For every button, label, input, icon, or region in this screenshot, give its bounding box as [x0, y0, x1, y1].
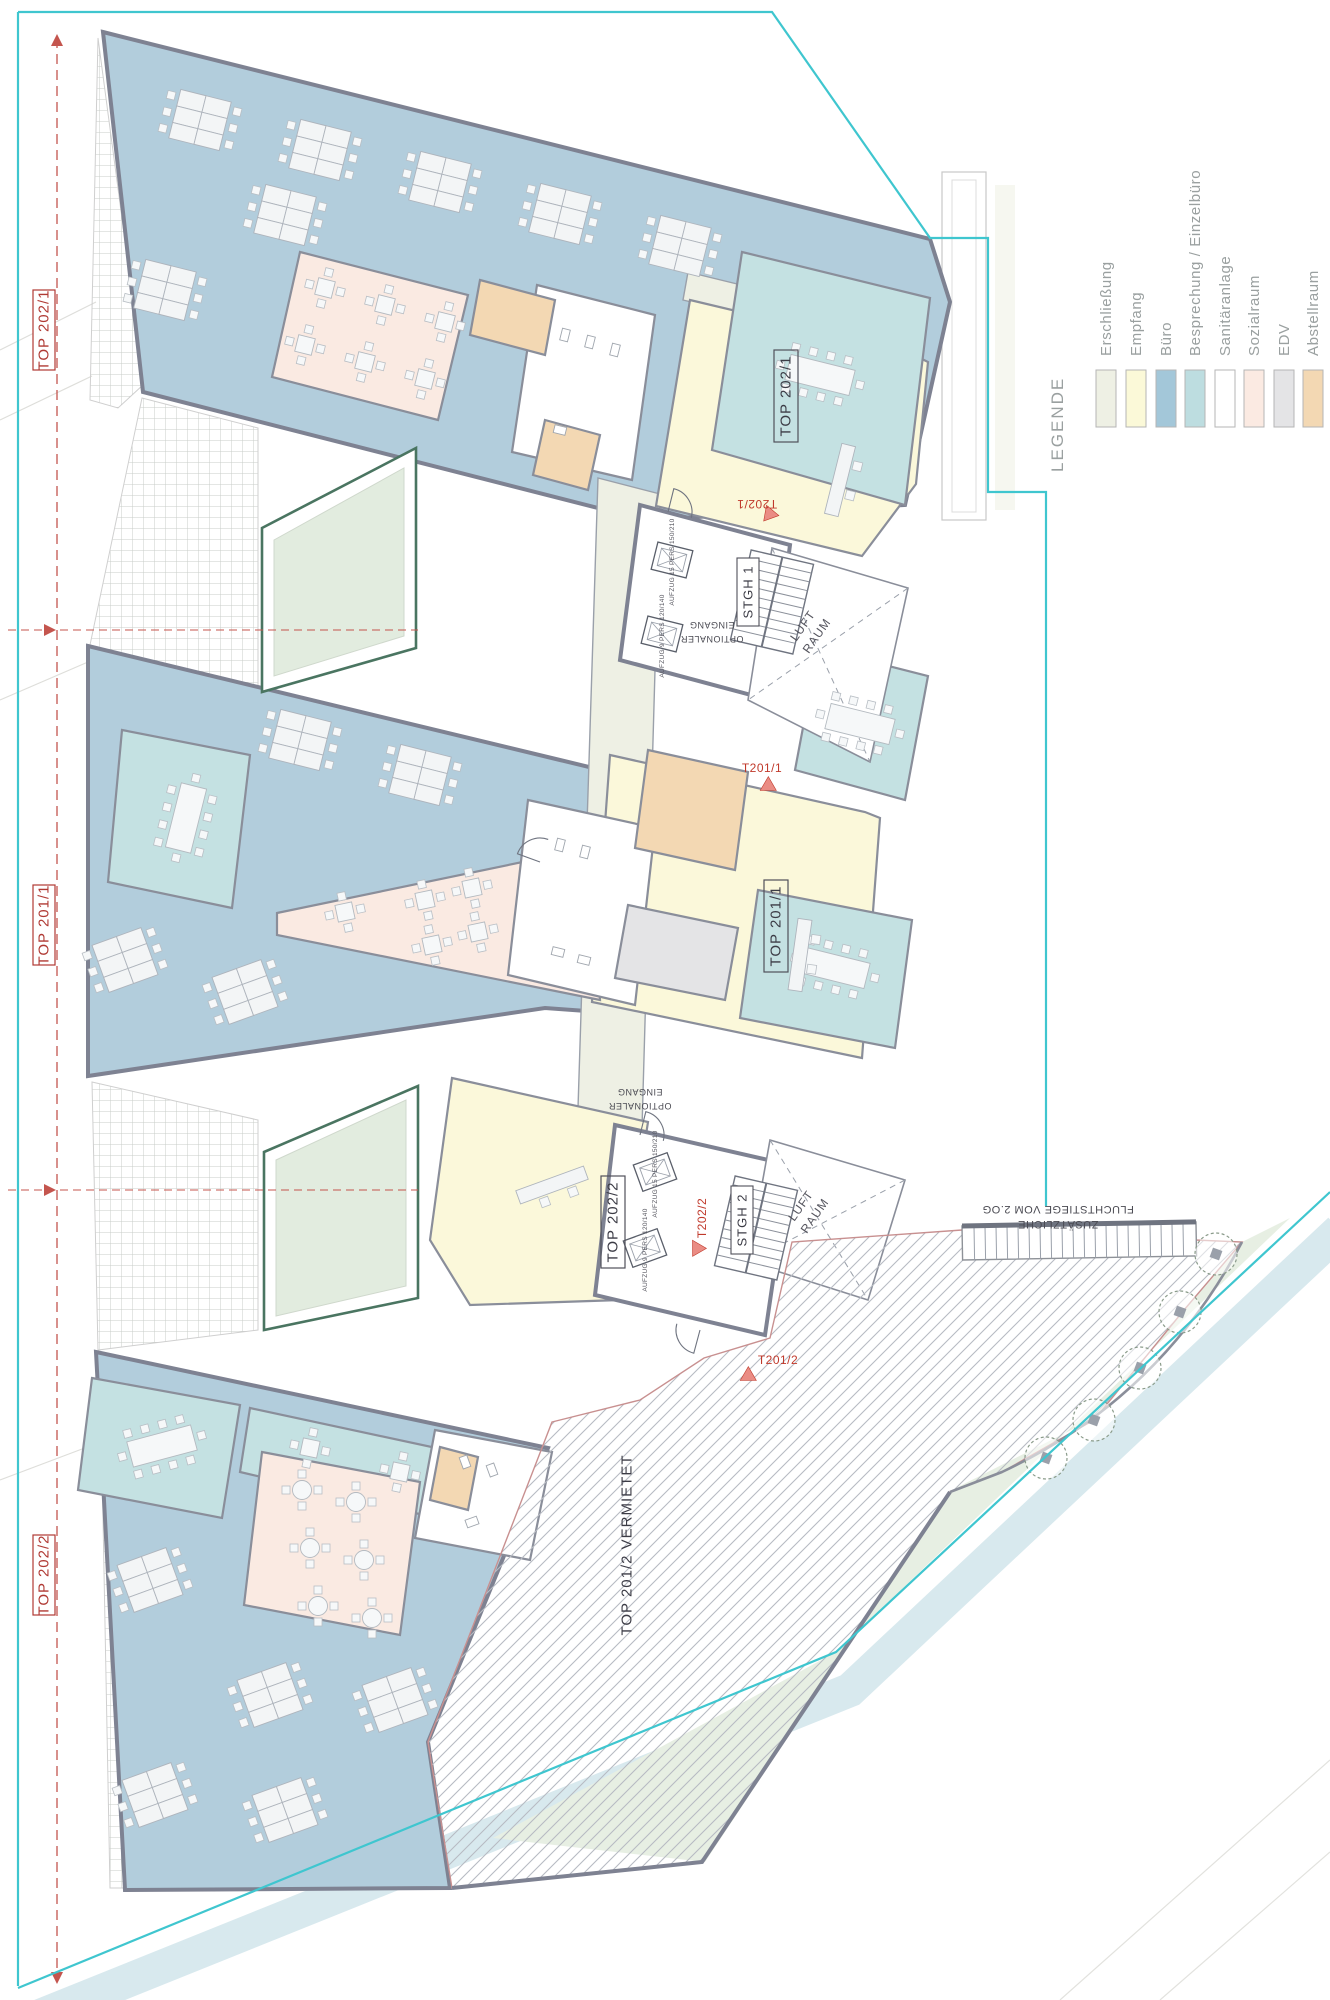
stair-label-2: STGH 2 — [731, 1186, 753, 1254]
unit-label-top-text: TOP 202/1 — [778, 356, 795, 437]
unit-label-top: TOP 202/1 — [774, 350, 798, 442]
legend-label-sozialraum: Sozialraum — [1246, 275, 1263, 356]
door-tag-bottom: T201/2 — [758, 1353, 798, 1367]
optional-entrance-1-line2: EINGANG — [689, 620, 734, 630]
elevator-2-label: AUFZUG 9 PERS 120/140 — [659, 594, 666, 677]
elevator-4-label: AUFZUG 9 PERS 120/140 — [642, 1208, 649, 1291]
unit-label-rented: TOP 201/2 VERMIETET — [619, 1454, 636, 1635]
legend-label-besprechung: Besprechung / Einzelbüro — [1187, 170, 1204, 356]
legend-title: LEGENDE — [1048, 377, 1067, 472]
optional-entrance-2-line1: OPTIONALER — [608, 1101, 671, 1111]
unit-label-left-lower: TOP 202/2 — [33, 1535, 55, 1616]
door-tag-top: T202/1 — [737, 497, 777, 511]
unit-label-left-top: TOP 202/1 — [33, 290, 55, 371]
legend-swatch-buero — [1156, 370, 1176, 427]
unit-label-lower-text: TOP 202/2 — [605, 1182, 622, 1263]
legend-swatch-empfang — [1126, 370, 1146, 427]
legend-swatch-abstellraum — [1303, 370, 1323, 427]
unit-label-middle: TOP 201/1 — [764, 880, 788, 972]
legend-swatch-erschliessung — [1096, 370, 1116, 427]
legend-swatch-besprechung — [1185, 370, 1205, 427]
legend-swatch-sanitaer — [1215, 370, 1235, 427]
door-tag-mid: T201/1 — [742, 761, 782, 775]
unit-label-left-middle-text: TOP 201/1 — [36, 885, 53, 966]
unit-label-lower: TOP 202/2 — [601, 1176, 625, 1268]
rented-terrace — [428, 1222, 1242, 1888]
elevator-3-label: AUFZUG 15 PERS 150/210 — [652, 1130, 659, 1217]
terrace-hatch — [428, 1230, 1242, 1888]
optional-entrance-1-line1: OPTIONALER — [680, 634, 743, 644]
legend-swatch-sozialraum — [1244, 370, 1264, 427]
legend-label-buero: Büro — [1158, 322, 1175, 356]
floor-plan-drawing: TOP 202/1 TOP 201/1 TOP 202/2 TOP 202/1 … — [0, 0, 1330, 2000]
unit-label-left-lower-text: TOP 202/2 — [36, 1535, 53, 1616]
storage-room-bottom — [430, 1447, 478, 1510]
legend: LEGENDE Erschließung Empfang Büro Bespre… — [1048, 170, 1323, 472]
unit-label-left-middle: TOP 201/1 — [33, 885, 55, 966]
optional-entrance-2-line2: EINGANG — [617, 1087, 662, 1097]
legend-swatch-edv — [1274, 370, 1294, 427]
legend-label-sanitaer: Sanitäranlage — [1217, 256, 1234, 356]
legend-label-edv: EDV — [1276, 323, 1293, 356]
stair-label-2-text: STGH 2 — [735, 1194, 750, 1247]
escape-stair-label-line2: FLUCHTSTIEGE VOM 2.OG — [982, 1203, 1134, 1215]
stair-label-1-text: STGH 1 — [741, 566, 756, 619]
storage-room-middle — [635, 750, 748, 870]
legend-label-erschliessung: Erschließung — [1098, 261, 1115, 356]
road-strip — [942, 172, 986, 520]
elevator-1-label: AUFZUG 15 PERS 150/210 — [669, 518, 676, 605]
floor-plan-sheet: TOP 202/1 TOP 201/1 TOP 202/2 TOP 202/1 … — [0, 0, 1330, 2000]
legend-label-empfang: Empfang — [1128, 292, 1145, 356]
unit-label-middle-text: TOP 201/1 — [768, 886, 785, 967]
unit-label-left-top-text: TOP 202/1 — [36, 290, 53, 371]
legend-label-abstellraum: Abstellraum — [1305, 270, 1322, 356]
escape-stair-label-line1: ZUSÄTZLICHE — [1018, 1218, 1099, 1230]
door-tag-lower: T202/2 — [695, 1198, 709, 1238]
stair-label-1: STGH 1 — [737, 558, 759, 626]
